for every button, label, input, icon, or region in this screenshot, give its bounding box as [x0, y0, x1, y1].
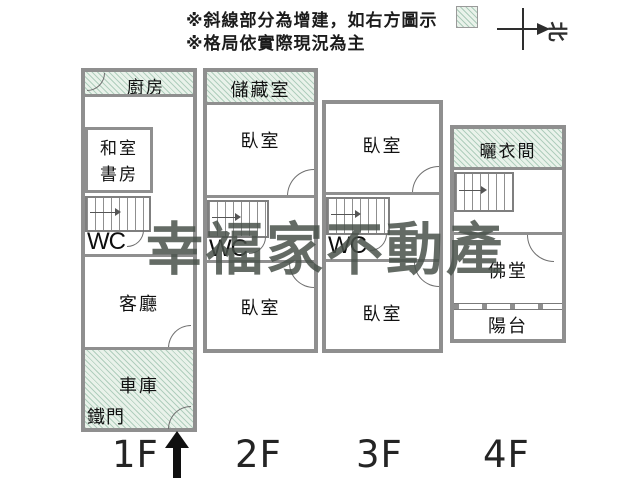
bedroom-top-door-arc-2f	[287, 169, 314, 196]
living-room-door-arc	[168, 325, 191, 348]
balcony-window-wall	[454, 303, 562, 310]
living-room-label: 客廳	[85, 290, 193, 316]
hatch-legend-swatch	[456, 6, 478, 28]
storage-label: 儲藏室	[207, 76, 314, 102]
wc-door-arc-1f	[127, 230, 144, 247]
mid-wall-3f	[326, 192, 439, 195]
bedroom-bottom-label-3f: 臥室	[326, 300, 439, 326]
north-compass: 北	[497, 6, 567, 54]
staircase-1f	[85, 196, 151, 232]
floor-label-1f: 1F	[112, 433, 159, 476]
floor-label-2f: 2F	[235, 433, 282, 476]
agency-watermark: 幸福家不動產	[146, 204, 506, 286]
study-room-box: 和室 書房	[85, 127, 153, 193]
stairs-direction-arrow	[481, 186, 487, 194]
drying-room-wall	[454, 167, 562, 170]
stairs-direction-arrow	[115, 208, 121, 216]
compass-cross-horizontal	[497, 28, 539, 30]
kitchen-wall	[85, 94, 193, 97]
study-label-line1: 和室	[88, 134, 150, 159]
balcony-label: 陽台	[454, 312, 562, 338]
stairs-direction-line	[90, 212, 118, 213]
legend-line-2: ※格局依實際現況為主	[186, 29, 366, 54]
floorplan-canvas: ※斜線部分為增建，如右方圖示 ※格局依實際現況為主 北 幸福家不動產 廚房 和室…	[0, 0, 640, 480]
entrance-arrow-icon	[165, 431, 189, 448]
mid-wall-2f	[207, 195, 314, 198]
bedroom-top-door-arc-3f	[412, 166, 439, 193]
legend-line-1: ※斜線部分為增建，如右方圖示	[186, 6, 438, 31]
garage-label: 車庫	[85, 372, 193, 398]
drying-room-label: 曬衣間	[454, 137, 562, 162]
study-label-line2: 書房	[88, 160, 150, 185]
storage-wall	[207, 102, 314, 105]
wc-label-1f: WC	[87, 228, 125, 256]
entrance-arrow-shaft	[173, 447, 181, 478]
iron-gate-label: 鐵門	[87, 403, 125, 429]
north-character: 北	[545, 22, 574, 42]
floor-label-4f: 4F	[483, 433, 530, 476]
bedroom-top-label-2f: 臥室	[207, 127, 314, 153]
floor-label-3f: 3F	[356, 433, 403, 476]
bedroom-top-label-3f: 臥室	[326, 132, 439, 158]
bedroom-bottom-label-2f: 臥室	[207, 294, 314, 320]
